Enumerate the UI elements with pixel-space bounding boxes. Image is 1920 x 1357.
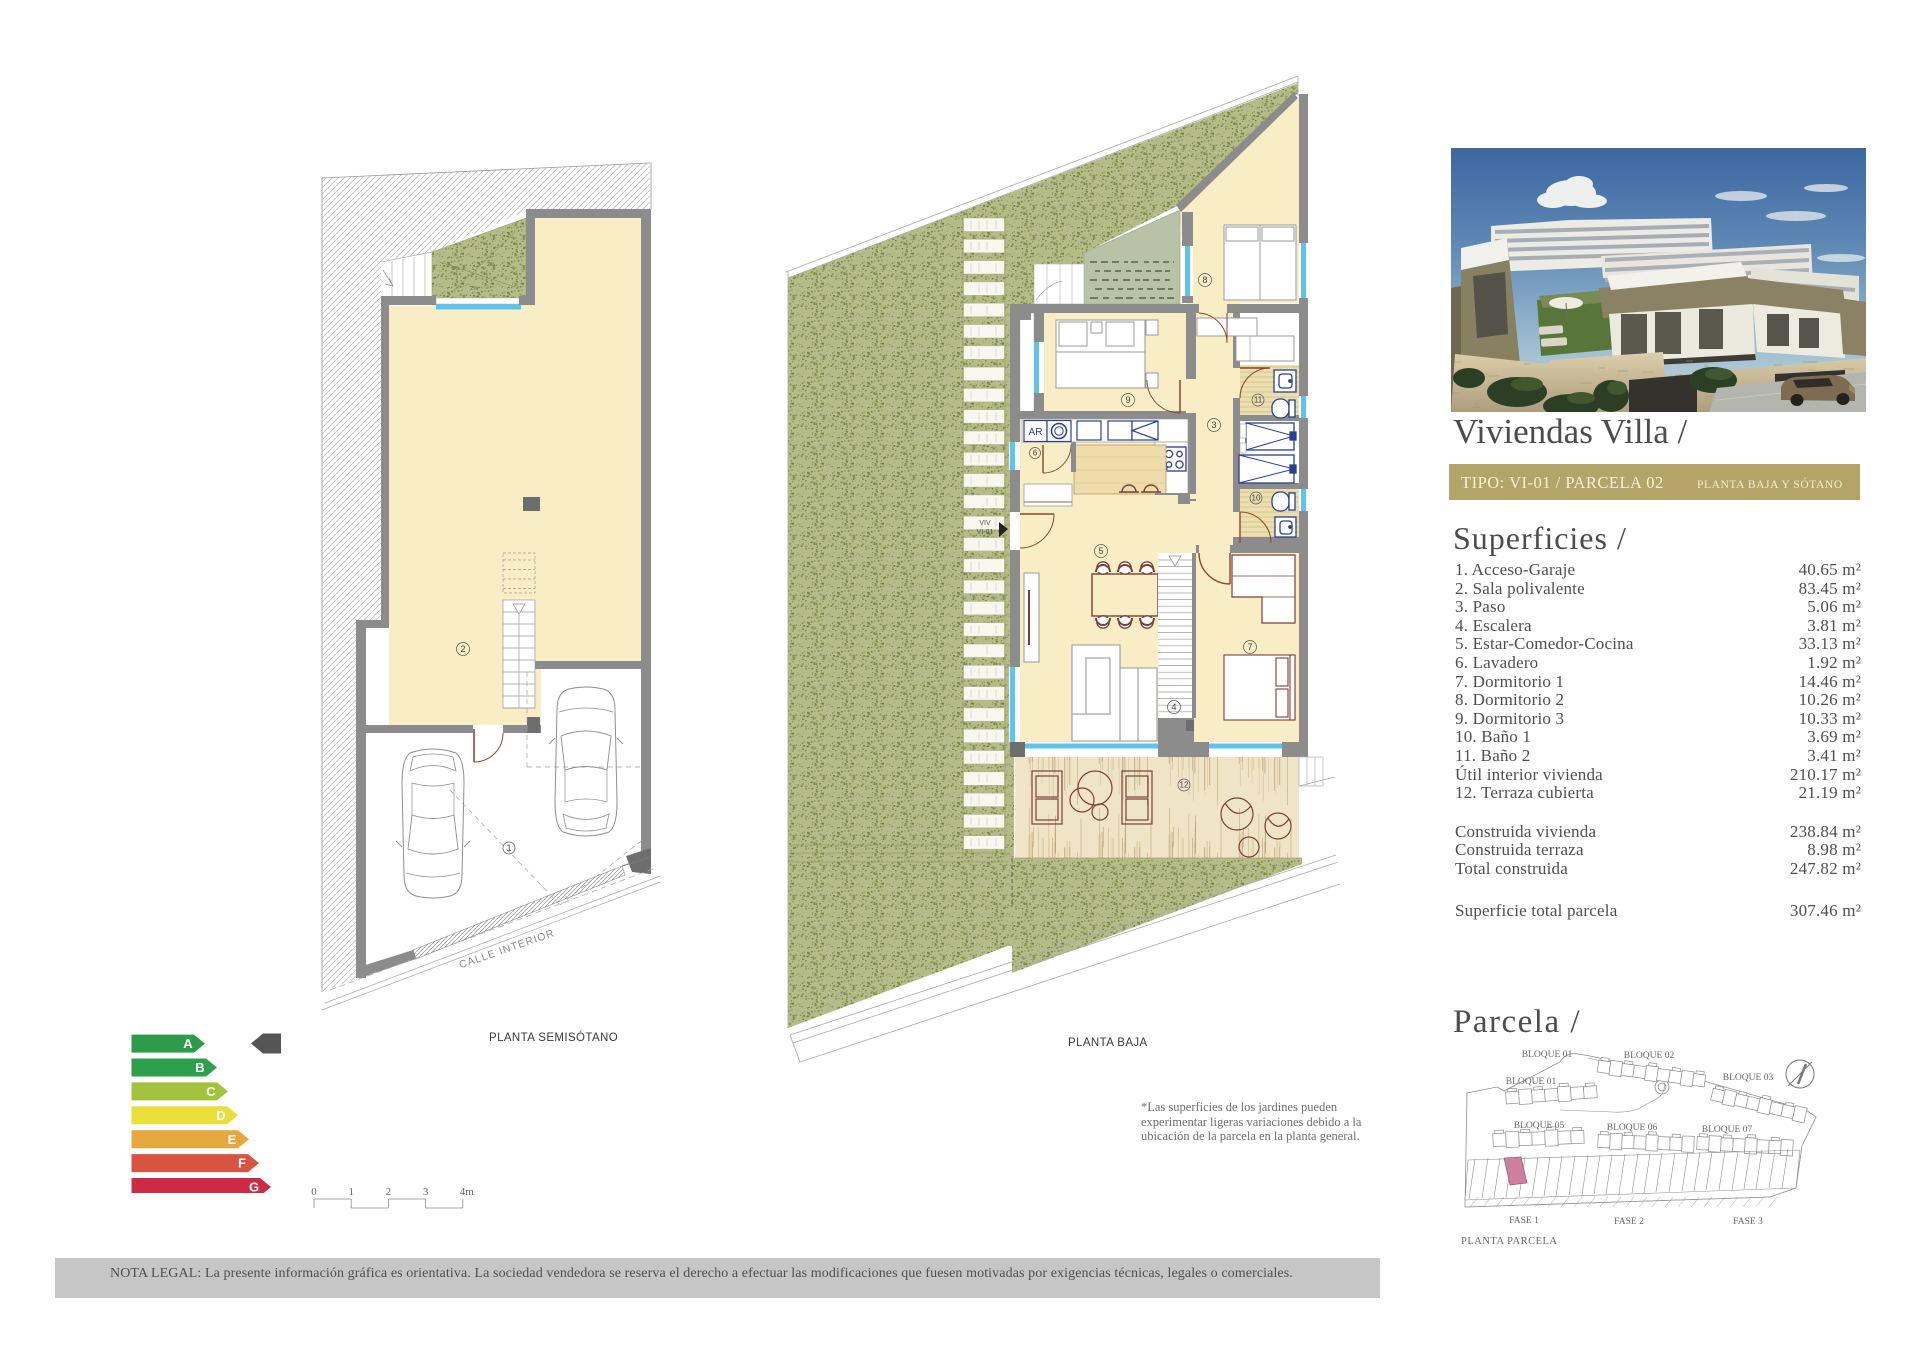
svg-text:5: 5 xyxy=(1098,546,1103,556)
svg-text:AR: AR xyxy=(1029,427,1043,438)
svg-text:VIV: VIV xyxy=(979,520,991,527)
svg-text:PLANTA PARCELA: PLANTA PARCELA xyxy=(1461,1236,1558,1247)
svg-text:BLOQUE 01: BLOQUE 01 xyxy=(1506,1077,1557,1087)
svg-text:F: F xyxy=(238,1156,246,1171)
svg-text:0: 0 xyxy=(311,1186,317,1198)
svg-text:12: 12 xyxy=(1180,781,1189,790)
svg-text:8: 8 xyxy=(1202,275,1207,285)
svg-text:BLOQUE 02: BLOQUE 02 xyxy=(1624,1051,1675,1061)
svg-text:2: 2 xyxy=(386,1186,392,1198)
svg-text:BLOQUE 03: BLOQUE 03 xyxy=(1723,1073,1774,1083)
svg-text:9: 9 xyxy=(1125,395,1130,405)
svg-text:VI-01: VI-01 xyxy=(977,529,994,536)
svg-text:10: 10 xyxy=(1252,494,1261,503)
svg-text:BLOQUE 07: BLOQUE 07 xyxy=(1702,1125,1753,1135)
svg-text:B: B xyxy=(195,1060,204,1075)
svg-text:1: 1 xyxy=(348,1186,354,1198)
svg-text:A: A xyxy=(183,1036,193,1051)
svg-text:C: C xyxy=(206,1084,216,1099)
svg-text:4m: 4m xyxy=(460,1186,475,1198)
svg-text:G: G xyxy=(249,1180,259,1193)
svg-text:11: 11 xyxy=(1254,396,1263,405)
svg-text:2%: 2% xyxy=(470,286,478,292)
svg-text:E: E xyxy=(228,1132,237,1147)
svg-text:6: 6 xyxy=(1033,449,1038,458)
svg-text:FASE 3: FASE 3 xyxy=(1733,1217,1763,1227)
svg-text:FASE 1: FASE 1 xyxy=(1509,1216,1539,1226)
svg-text:D: D xyxy=(216,1108,225,1123)
svg-text:BLOQUE 01: BLOQUE 01 xyxy=(1522,1050,1573,1060)
svg-text:7: 7 xyxy=(1247,642,1252,652)
svg-text:3: 3 xyxy=(423,1186,429,1198)
svg-text:BLOQUE 06: BLOQUE 06 xyxy=(1607,1123,1658,1133)
svg-text:1: 1 xyxy=(506,843,511,853)
svg-text:2%: 2% xyxy=(452,266,460,272)
svg-text:BLOQUE 05: BLOQUE 05 xyxy=(1514,1121,1565,1131)
svg-text:3: 3 xyxy=(1211,420,1216,430)
svg-text:4: 4 xyxy=(1171,702,1176,712)
svg-text:2: 2 xyxy=(460,644,465,654)
svg-text:2%: 2% xyxy=(487,262,495,268)
svg-text:FASE 2: FASE 2 xyxy=(1614,1217,1644,1227)
